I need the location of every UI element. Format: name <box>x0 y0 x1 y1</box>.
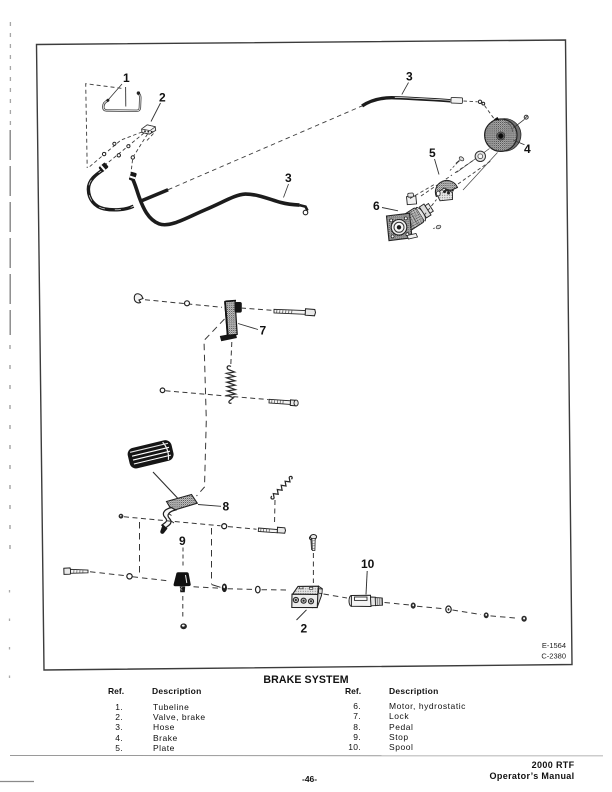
svg-text:7: 7 <box>260 324 267 338</box>
svg-text:9: 9 <box>179 534 186 548</box>
svg-text:3: 3 <box>285 171 292 185</box>
svg-text:2: 2 <box>301 622 308 636</box>
svg-text:E-1564: E-1564 <box>542 641 566 650</box>
svg-text:4: 4 <box>524 142 531 156</box>
svg-text:10: 10 <box>361 557 375 571</box>
svg-text:8: 8 <box>223 500 230 514</box>
svg-text:3: 3 <box>406 70 413 84</box>
svg-text:6: 6 <box>373 199 380 213</box>
svg-text:1: 1 <box>123 71 130 85</box>
svg-text:C-2380: C-2380 <box>541 652 566 661</box>
svg-text:5: 5 <box>429 146 436 160</box>
svg-text:2: 2 <box>159 91 166 105</box>
